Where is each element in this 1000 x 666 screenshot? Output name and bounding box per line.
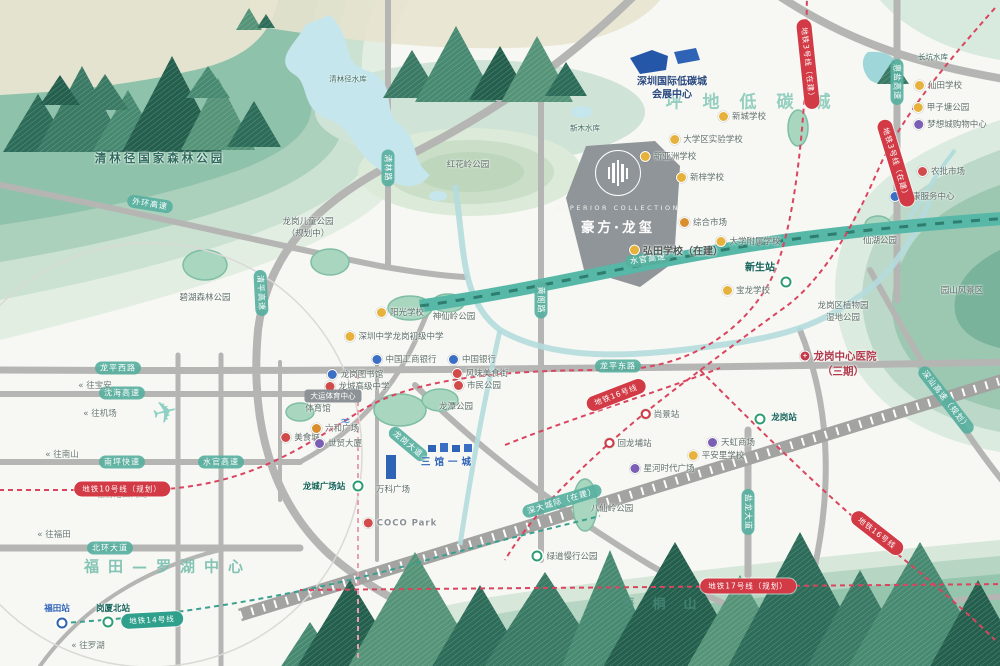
metro-line-pill: 地铁17号线（规划） — [700, 579, 796, 594]
shp-icon — [707, 437, 718, 448]
poi-label: 宝龙学校 — [722, 284, 770, 296]
sch-icon — [344, 331, 355, 342]
poi-label: 仙田学校 — [914, 79, 962, 91]
poi-label: 大学区实验学校 — [669, 133, 743, 145]
poi-text: 清林径水库 — [329, 74, 367, 85]
sch-icon — [718, 111, 729, 122]
mkt-icon — [679, 217, 690, 228]
poi-label: 园山风景区 — [941, 284, 984, 296]
direction-arrow-label: « 往福田 — [37, 528, 70, 540]
fd-icon — [452, 368, 463, 379]
direction-arrow-label: « 往机场 — [83, 407, 116, 419]
poi-label: 新梓学校 — [676, 171, 724, 183]
poi-label: 平安里学校 — [688, 449, 745, 461]
poi-label: 龙岗区植物园 — [817, 299, 868, 311]
direction-arrow-label: « 往宝安 — [78, 379, 111, 391]
poi-label: 会展中心 — [652, 86, 692, 101]
poi-label: 三馆一城 — [421, 454, 475, 468]
poi-text: 园山风景区 — [941, 284, 984, 296]
poi-text: 新城学校 — [732, 110, 766, 122]
poi-text: 大学附属学校 — [729, 235, 780, 247]
sch-icon — [688, 450, 699, 461]
direction-arrow-label: « 往南山 — [45, 448, 78, 460]
poi-text: 星河时代广场 — [643, 462, 694, 474]
shp-icon — [314, 438, 325, 449]
poi-text: 中国银行 — [462, 353, 496, 365]
poi-label: 甲子塘公园 — [913, 101, 970, 113]
project-name-cn: 豪方·龙玺 — [581, 216, 655, 236]
poi-text: 深圳中学龙岗初级中学 — [358, 330, 443, 342]
station-icon — [604, 438, 614, 448]
sch-icon — [376, 307, 387, 318]
poi-text: 清林径国家森林公园 — [95, 150, 226, 166]
sch-icon — [640, 151, 651, 162]
poi-label: 岗厦北站 — [96, 602, 130, 614]
poi-text: （规划中） — [287, 227, 330, 239]
poi-label: 回龙埔站 — [604, 437, 651, 449]
road-label: 龙平东路 — [595, 360, 641, 373]
poi-text: 大运体育中心 — [305, 390, 362, 403]
poi-text: 岗厦北站 — [96, 602, 130, 614]
poi-text: 绿道慢行公园 — [546, 550, 597, 562]
poi-text: 世贸大厦 — [328, 437, 362, 449]
poi-text: 农批市场 — [931, 165, 965, 177]
poi-text: 红花岭公园 — [447, 158, 490, 170]
road-label: 南坪快速 — [99, 456, 145, 469]
shp-icon — [913, 119, 924, 130]
map-canvas[interactable]: ≈ ✈ SUPERIOR COLLECTION 豪方·龙玺 坪地低碳城福田—罗湖… — [0, 0, 1000, 666]
poi-label: 天虹商场 — [707, 436, 755, 448]
station-dot[interactable] — [57, 618, 68, 629]
poi-text: 风味美食街 — [466, 367, 509, 379]
area-text: 梧桐山 — [621, 594, 714, 613]
poi-label: 市民公园 — [453, 379, 501, 391]
poi-label: COCO Park — [363, 518, 437, 529]
poi-text: 综合市场 — [693, 216, 727, 228]
area-text: 坪地低碳城 — [666, 88, 851, 113]
poi-label: 星河时代广场 — [629, 462, 694, 474]
poi-label: 阳光学校 — [376, 306, 424, 318]
poi-text: 龙岗区植物园 — [817, 299, 868, 311]
road-label: 清平高速 — [253, 270, 268, 317]
poi-label: 长坑水库 — [918, 52, 948, 63]
poi-label: 新生站 — [745, 259, 775, 274]
poi-label: 尚景站 — [641, 408, 680, 420]
metro-line-pill: 地铁14号线 — [121, 611, 183, 629]
poi-text: 仙湖公园 — [863, 234, 897, 246]
poi-text: 长坑水库 — [918, 52, 948, 63]
poi-text: 六和广场 — [325, 422, 359, 434]
sanguan-building-1 — [428, 445, 436, 452]
poi-label: 神仙岭公园 — [433, 310, 476, 322]
sanguan-building-2 — [440, 443, 448, 452]
poi-label: 风味美食街 — [452, 367, 509, 379]
convention-center-building — [630, 50, 668, 74]
road-label: 北环大道 — [87, 542, 133, 555]
poi-label: 大学附属学校 — [715, 235, 780, 247]
area-text: 福田—罗湖中心 — [84, 556, 252, 577]
poi-label: 万科广场 — [376, 483, 410, 495]
poi-text: 大学区实验学校 — [683, 133, 743, 145]
road-label: 水官高速 — [198, 456, 244, 469]
sch-icon — [669, 134, 680, 145]
poi-text: 梦想城购物中心 — [927, 118, 987, 130]
park-blob — [374, 394, 426, 426]
fd-icon — [363, 518, 374, 529]
direction-arrow-label: « 往罗湖 — [71, 639, 104, 651]
fd-icon — [453, 380, 464, 391]
sch-icon — [676, 172, 687, 183]
poi-text: （三期） — [822, 364, 864, 379]
poi-text: 市民公园 — [467, 379, 501, 391]
poi-label: 弘田学校（在建） — [629, 243, 723, 258]
sch-icon — [722, 285, 733, 296]
station-dot[interactable] — [353, 481, 364, 492]
poi-label: 农批市场 — [917, 165, 965, 177]
bnk-icon — [448, 354, 459, 365]
mkt-icon — [311, 423, 322, 434]
project-logo-icon — [595, 150, 641, 196]
poi-label: 中国银行 — [448, 353, 496, 365]
station-dot[interactable] — [103, 617, 114, 628]
poi-text: 新梓学校 — [690, 171, 724, 183]
poi-label: 龙城广场站 — [303, 480, 346, 492]
bnk-icon — [371, 354, 382, 365]
sch-icon — [914, 80, 925, 91]
poi-text: 湿地公园 — [826, 311, 860, 323]
bnk-icon — [327, 369, 338, 380]
poi-label: 世贸大厦 — [314, 437, 362, 449]
poi-text: 福田站 — [44, 602, 70, 614]
poi-text: 龙潭公园 — [439, 400, 473, 412]
metro-line-pill: 地铁10号线（规划） — [74, 482, 170, 497]
poi-text: 神仙岭公园 — [433, 310, 476, 322]
road-label: 惠盐高速 — [891, 59, 904, 105]
poi-label: 湿地公园 — [826, 311, 860, 323]
poi-label: 大运体育中心 — [305, 390, 362, 403]
poi-label: 清林径水库 — [329, 74, 367, 85]
poi-text: COCO Park — [377, 518, 437, 528]
poi-text: 三馆一城 — [421, 454, 475, 468]
poi-label: 新亚洲学校 — [640, 150, 697, 162]
poi-text: 弘田学校（在建） — [643, 243, 723, 258]
poi-label: （规划中） — [287, 227, 330, 239]
poi-text: 尚景站 — [654, 408, 680, 420]
poi-label: 龙岗图书馆 — [327, 368, 384, 380]
fd-icon — [917, 166, 928, 177]
poi-text: 万科广场 — [376, 483, 410, 495]
poi-label: 龙潭公园 — [439, 400, 473, 412]
road-label: 盐龙大道 — [742, 489, 755, 535]
poi-text: 阳光学校 — [390, 306, 424, 318]
sch-icon — [715, 236, 726, 247]
vanke-plaza-building — [386, 455, 396, 479]
poi-text: 中国工商银行 — [385, 353, 436, 365]
project-name-en: SUPERIOR COLLECTION — [556, 204, 680, 212]
poi-text: 体育馆 — [305, 402, 331, 414]
poi-label: 八仙岭公园 — [591, 502, 634, 514]
shp-icon — [629, 463, 640, 474]
station-dot[interactable] — [532, 551, 543, 562]
poi-text: 新亚洲学校 — [654, 150, 697, 162]
poi-text: 龙岗儿童公园 — [282, 215, 333, 227]
poi-label: 碧湖森林公园 — [179, 291, 230, 303]
poi-text: 平安里学校 — [702, 449, 745, 461]
poi-label: 六和广场 — [311, 422, 359, 434]
sch-icon — [629, 245, 640, 256]
poi-label: 清林径国家森林公园 — [95, 150, 226, 166]
poi-text: 仙田学校 — [928, 79, 962, 91]
poi-label: 福田站 — [44, 602, 70, 614]
small-pond — [429, 191, 447, 201]
hospital-icon: + — [800, 351, 811, 362]
sanguan-building-3 — [452, 445, 460, 452]
poi-text: 新生站 — [745, 259, 775, 274]
poi-label: 仙湖公园 — [863, 234, 897, 246]
poi-label: 新木水库 — [570, 123, 600, 134]
poi-text: 龙岗中心医院 — [814, 349, 877, 364]
poi-text: 宝龙学校 — [736, 284, 770, 296]
road-label: 清林路 — [382, 150, 395, 187]
poi-text: 龙岗站 — [771, 411, 797, 423]
poi-text: 龙岗图书馆 — [341, 368, 384, 380]
poi-text: 八仙岭公园 — [591, 502, 634, 514]
sanguan-building-4 — [464, 444, 472, 452]
poi-label: 红花岭公园 — [447, 158, 490, 170]
road-label: 黄阁路 — [535, 282, 548, 319]
poi-text: 甲子塘公园 — [927, 101, 970, 113]
poi-text: 会展中心 — [652, 86, 692, 101]
poi-label: 龙岗站 — [771, 411, 797, 423]
park-blob — [788, 110, 808, 146]
poi-text: 天虹商场 — [721, 436, 755, 448]
poi-label: 深圳中学龙岗初级中学 — [344, 330, 443, 342]
poi-label: 绿道慢行公园 — [546, 550, 597, 562]
xinmu-reservoir — [571, 106, 593, 118]
poi-text: 龙城广场站 — [303, 480, 346, 492]
park-blob — [311, 249, 349, 275]
station-dot[interactable] — [781, 277, 792, 288]
poi-label: 综合市场 — [679, 216, 727, 228]
poi-text: 碧湖森林公园 — [179, 291, 230, 303]
poi-label: +龙岗中心医院 — [800, 349, 877, 364]
poi-label: 中国工商银行 — [371, 353, 436, 365]
poi-label: 梦想城购物中心 — [913, 118, 987, 130]
sch-icon — [913, 102, 924, 113]
fd-icon — [280, 432, 291, 443]
convention-center-annex — [674, 48, 700, 64]
poi-label: 新城学校 — [718, 110, 766, 122]
road-label: 龙平西路 — [95, 362, 141, 375]
poi-label: （三期） — [822, 364, 864, 379]
poi-label: 龙岗儿童公园 — [282, 215, 333, 227]
station-dot[interactable] — [755, 414, 766, 425]
poi-text: 回龙埔站 — [617, 437, 651, 449]
poi-label: 体育馆 — [305, 402, 331, 414]
station-icon — [641, 409, 651, 419]
poi-text: 新木水库 — [570, 123, 600, 134]
